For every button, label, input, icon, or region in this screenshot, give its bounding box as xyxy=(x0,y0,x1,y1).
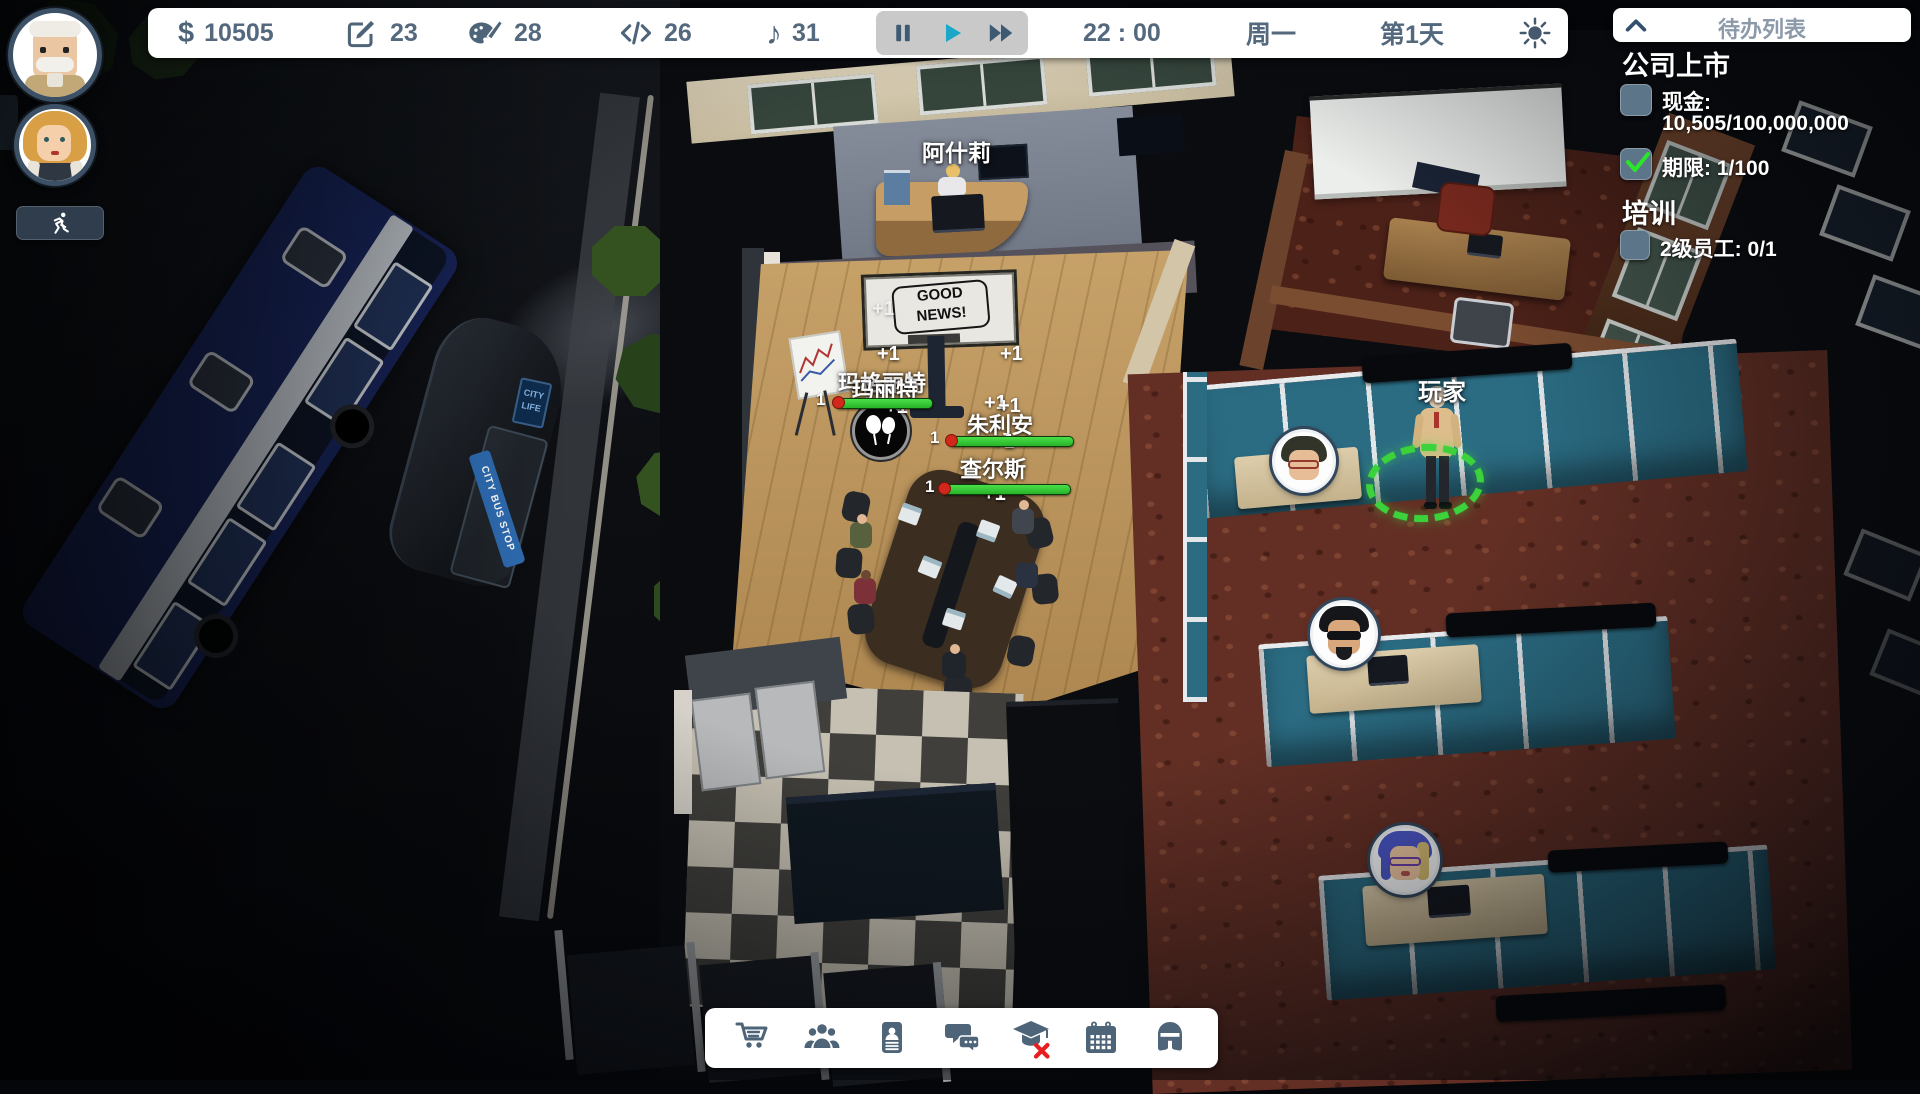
character-avatar-oldman[interactable] xyxy=(8,8,102,102)
speed-controls xyxy=(876,11,1028,55)
todo-panel-header[interactable]: 待办列表 xyxy=(1613,8,1911,42)
id-card-icon xyxy=(872,1018,912,1058)
shop-button[interactable] xyxy=(731,1016,775,1060)
art-stat: 28 xyxy=(466,8,542,58)
palette-icon xyxy=(466,14,504,52)
calendar-icon xyxy=(1081,1018,1121,1058)
code-stat: 26 xyxy=(618,8,692,58)
bottom-toolbar xyxy=(705,1008,1218,1068)
code-icon xyxy=(618,15,654,51)
running-person-icon xyxy=(47,210,73,236)
training-button[interactable] xyxy=(1009,1016,1053,1060)
disabled-x-icon xyxy=(1036,1045,1048,1057)
helmet-icon xyxy=(1150,1018,1190,1058)
money-icon: $ xyxy=(178,17,194,50)
weekday: 周一 xyxy=(1246,8,1296,58)
play-button[interactable] xyxy=(930,11,974,55)
graduation-cap-icon xyxy=(1009,1016,1053,1060)
pencil-square-icon xyxy=(344,15,380,51)
fast-forward-button[interactable] xyxy=(979,11,1023,55)
top-status-bar: $ 10505 23 28 26 ♪ 31 22 : 00 周一 第1天 xyxy=(148,8,1568,58)
todo-checkbox-staff xyxy=(1620,230,1650,260)
todo-section-heading: 公司上市 xyxy=(1622,44,1730,83)
team-icon xyxy=(802,1018,842,1058)
todo-panel-title: 待办列表 xyxy=(1613,12,1911,44)
clock-time: 22 : 00 xyxy=(1083,8,1161,58)
day-counter: 第1天 xyxy=(1380,8,1444,58)
todo-item-staff: 2级员工: 0/1 xyxy=(1660,233,1777,263)
contacts-button[interactable] xyxy=(870,1016,914,1060)
sun-icon xyxy=(1516,14,1554,52)
chat-icon xyxy=(942,1018,982,1058)
run-mode-button[interactable] xyxy=(16,206,104,240)
music-note-icon: ♪ xyxy=(766,15,782,52)
design-stat: 23 xyxy=(344,8,418,58)
audio-stat: ♪ 31 xyxy=(766,8,820,58)
todo-checkbox-cash xyxy=(1620,84,1652,116)
todo-item-cash-value: 10,505/100,000,000 xyxy=(1662,112,1849,136)
character-avatar-woman[interactable] xyxy=(14,104,96,186)
todo-section-heading: 培训 xyxy=(1622,192,1676,231)
todo-checkbox-deadline xyxy=(1620,148,1652,180)
daytime-indicator xyxy=(1516,8,1554,58)
team-button[interactable] xyxy=(800,1016,844,1060)
pause-button[interactable] xyxy=(881,11,925,55)
todo-item-deadline: 期限: 1/100 xyxy=(1662,152,1769,182)
check-icon xyxy=(1623,147,1653,177)
chat-button[interactable] xyxy=(940,1016,984,1060)
equipment-button[interactable] xyxy=(1148,1016,1192,1060)
cart-icon xyxy=(733,1018,773,1058)
money-stat: $ 10505 xyxy=(178,8,274,58)
calendar-button[interactable] xyxy=(1079,1016,1123,1060)
